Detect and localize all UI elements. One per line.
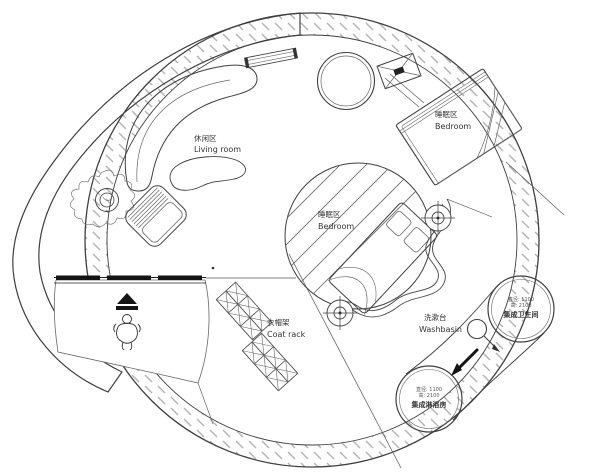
bedroom-upper-label-en: Bedroom bbox=[435, 122, 471, 131]
washbasin-label-zh: 洗漱台 bbox=[424, 312, 447, 322]
floor-plan-drawing: 休闲区 Living room 睡眠区 Bedroom 睡眠区 Bedroom … bbox=[0, 0, 611, 473]
living-room-label-en: Living room bbox=[194, 145, 241, 154]
bathroom-pod-name: 集成卫生间 bbox=[503, 310, 539, 319]
shower-pod-name: 集成淋浴房 bbox=[411, 400, 447, 409]
washbasin-label-en: Washbasin bbox=[419, 325, 462, 334]
bathroom-pod-spec2: 高: 2100 bbox=[511, 302, 532, 309]
bathroom-pod-spec1: 直径: 1100 bbox=[508, 296, 534, 303]
bedroom-upper-label-zh: 睡眠区 bbox=[435, 110, 458, 119]
coat-rack-label-zh: 衣帽架 bbox=[267, 317, 290, 327]
living-room-label-zh: 休闲区 bbox=[194, 133, 217, 143]
bedroom-center-label-en: Bedroom bbox=[318, 222, 354, 231]
shower-pod-spec2: 高: 2100 bbox=[419, 392, 440, 399]
floor-plan: 休闲区 Living room 睡眠区 Bedroom 睡眠区 Bedroom … bbox=[0, 0, 611, 473]
shower-pod-spec1: 直径: 1100 bbox=[416, 386, 442, 393]
plan-dot bbox=[212, 267, 215, 270]
coat-rack-label-en: Coat rack bbox=[267, 330, 306, 339]
bedroom-center-label-zh: 睡眠区 bbox=[318, 210, 341, 219]
